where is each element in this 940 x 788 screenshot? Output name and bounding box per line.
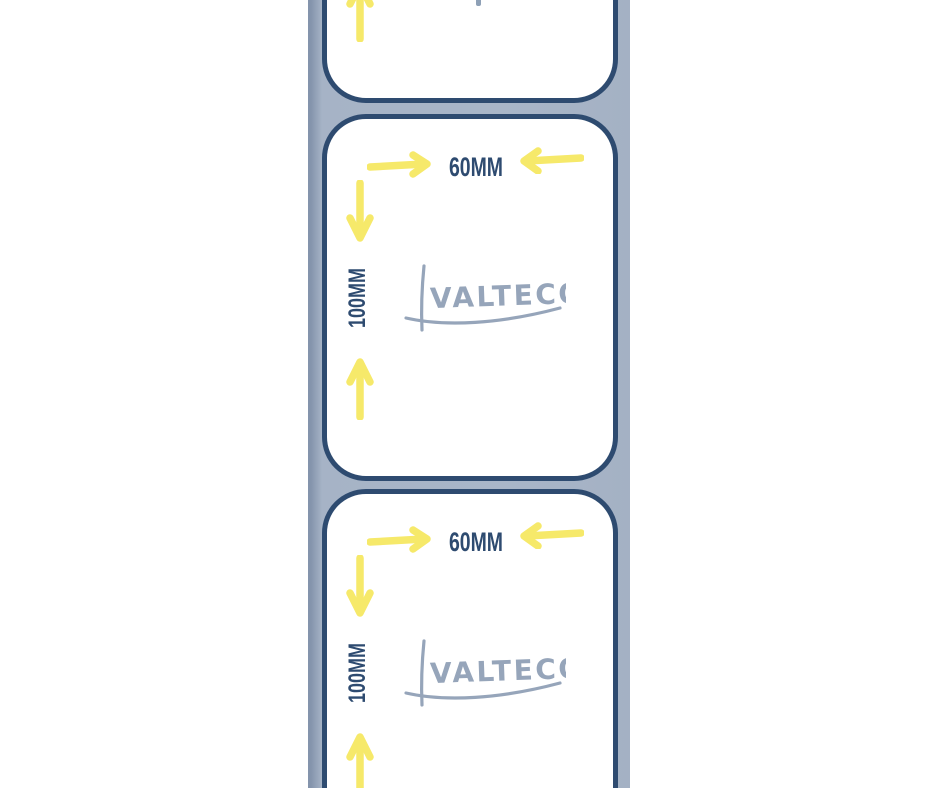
width-arrow-right-icon bbox=[367, 150, 443, 180]
brand-text: VALTECO bbox=[429, 277, 566, 315]
width-arrow-right-icon bbox=[367, 525, 443, 555]
label-sticker-bottom: 60MM 100MM VALTECO bbox=[322, 489, 618, 788]
height-arrow-up-icon bbox=[345, 356, 375, 420]
brand-text: VALTECO bbox=[429, 652, 566, 690]
cropped-letter-fragment bbox=[476, 0, 481, 6]
valteco-logo: VALTECO bbox=[400, 633, 566, 709]
width-dimension-text: 60MM bbox=[444, 153, 507, 181]
height-arrow-down-icon bbox=[345, 180, 375, 244]
height-arrow-up-icon bbox=[345, 731, 375, 788]
height-arrow-up-icon bbox=[345, 0, 375, 42]
height-dimension-text: 100MM bbox=[346, 639, 370, 707]
label-roll-mockup: 60MM 100MM VALTECO bbox=[0, 0, 940, 788]
width-arrow-left-icon bbox=[510, 146, 584, 174]
height-arrow-down-icon bbox=[345, 555, 375, 619]
width-arrow-left-icon bbox=[510, 521, 584, 549]
width-dimension-text: 60MM bbox=[444, 528, 507, 556]
label-sticker-middle: 60MM 100MM VALTECO bbox=[322, 114, 618, 481]
valteco-logo: VALTECO bbox=[400, 258, 566, 334]
label-sticker-top: 60MM 100MM VALTECO bbox=[322, 0, 618, 103]
height-dimension-text: 100MM bbox=[346, 264, 370, 332]
